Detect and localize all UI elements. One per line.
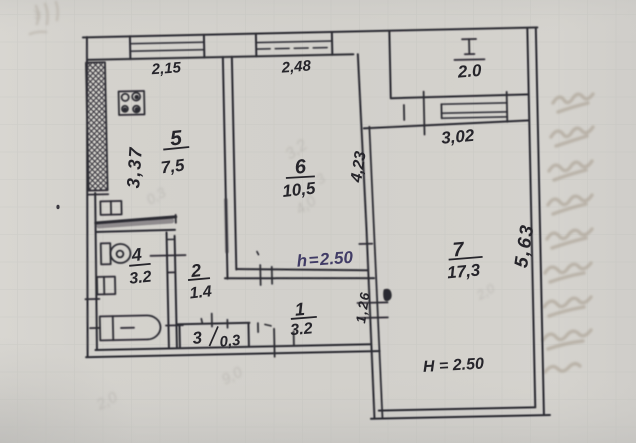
svg-text:2,48: 2,48 [280, 57, 312, 76]
svg-text:3.2: 3.2 [129, 268, 153, 287]
svg-text:2: 2 [189, 260, 202, 281]
svg-text:1: 1 [294, 299, 306, 320]
svg-text:17,3: 17,3 [446, 260, 481, 282]
svg-text:2.0: 2.0 [456, 61, 483, 82]
svg-text:H = 2.50: H = 2.50 [423, 355, 485, 375]
svg-text:1.4: 1.4 [189, 283, 213, 302]
svg-text:10,5: 10,5 [281, 178, 316, 201]
svg-text:5: 5 [169, 126, 183, 150]
svg-text:3,37: 3,37 [123, 145, 146, 188]
svg-text:3,02: 3,02 [440, 126, 475, 148]
svg-text:7,5: 7,5 [160, 156, 186, 178]
svg-text:4: 4 [130, 244, 143, 265]
svg-text:3.2: 3.2 [290, 320, 314, 339]
svg-text:2,15: 2,15 [150, 59, 182, 78]
svg-text:0,3: 0,3 [219, 332, 242, 351]
